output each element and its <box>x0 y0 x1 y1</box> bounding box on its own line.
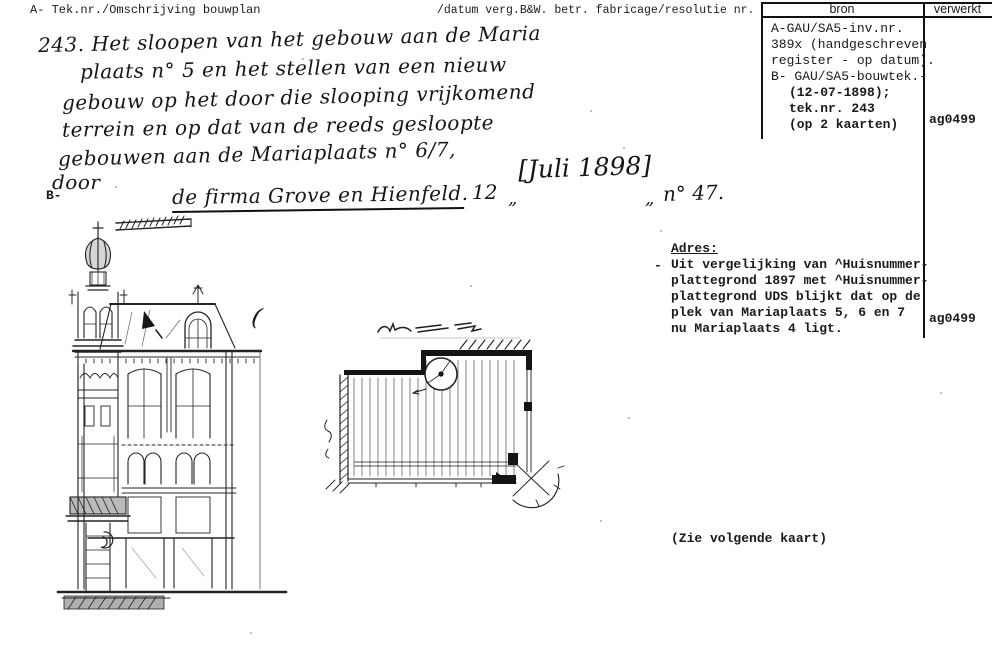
adres-title: Adres: <box>671 241 718 256</box>
handwritten-line: gebouw op het door die slooping vrijkome… <box>62 79 536 115</box>
column-header-left: A- Tek.nr./Omschrijving bouwplan <box>30 3 260 17</box>
table-left-rule <box>761 2 763 139</box>
adres-line: plattegrond 1897 met ^Huisnummer- <box>671 273 928 289</box>
scan-speckle <box>302 58 304 60</box>
scan-speckle <box>623 147 625 149</box>
bron-line: register - op datum). <box>771 53 935 69</box>
next-card-note: (Zie volgende kaart) <box>671 531 827 546</box>
handwritten-resolution-number: n° 47. <box>663 180 725 206</box>
scan-speckle <box>600 520 602 522</box>
floor-plan-sketch <box>320 312 590 512</box>
bron-line: 389x (handgeschreven <box>771 37 935 53</box>
verwerkt-code-bottom: ag0499 <box>929 311 976 326</box>
column-header-mid: /datum verg.B&W. betr. fabricage/resolut… <box>437 4 754 17</box>
bron-line-bold: (12-07-1898); <box>771 85 935 101</box>
bron-line: B- GAU/SA5-bouwtek.- <box>771 69 935 85</box>
scan-speckle <box>940 392 942 394</box>
ditto-mark: „ <box>645 188 654 209</box>
ditto-mark: „ <box>508 188 517 209</box>
adres-dash: - <box>654 258 662 273</box>
table-header-rule <box>761 16 992 18</box>
adres-line: plattegrond UDS blijkt dat op de <box>671 289 928 305</box>
scan-speckle <box>115 186 117 188</box>
adres-block: Uit vergelijking van ^Huisnummer- platte… <box>671 257 928 337</box>
bron-line-bold: (op 2 kaarten) <box>771 117 935 133</box>
handwritten-line: 243. Het sloopen van het gebouw aan de M… <box>38 21 541 57</box>
scan-speckle <box>250 632 252 634</box>
register-card: A- Tek.nr./Omschrijving bouwplan /datum … <box>0 0 992 649</box>
scan-speckle <box>470 285 472 287</box>
adres-line: nu Mariaplaats 4 ligt. <box>671 321 928 337</box>
adres-line: plek van Mariaplaats 5, 6 en 7 <box>671 305 928 321</box>
handwritten-line: gebouwen aan de Mariaplaats n° 6/7, <box>58 137 456 171</box>
column-header-verwerkt: verwerkt <box>923 2 992 16</box>
bron-line-bold: tek.nr. 243 <box>771 101 935 117</box>
handwritten-day: 12 <box>472 180 497 204</box>
bron-cell: A-GAU/SA5-inv.nr. 389x (handgeschreven r… <box>771 21 935 133</box>
column-header-bron: bron <box>761 2 923 16</box>
scan-speckle <box>590 110 592 112</box>
adres-line: Uit vergelijking van ^Huisnummer- <box>671 257 928 273</box>
verwerkt-code-top: ag0499 <box>929 112 976 127</box>
handwritten-line: plaats n° 5 en het stellen van een nieuw <box>80 52 507 83</box>
handwritten-date-insert: [Juli 1898] <box>518 151 652 185</box>
scan-speckle <box>628 417 630 419</box>
facade-elevation-sketch <box>48 192 298 626</box>
scan-speckle <box>660 230 662 232</box>
bron-line: A-GAU/SA5-inv.nr. <box>771 21 935 37</box>
